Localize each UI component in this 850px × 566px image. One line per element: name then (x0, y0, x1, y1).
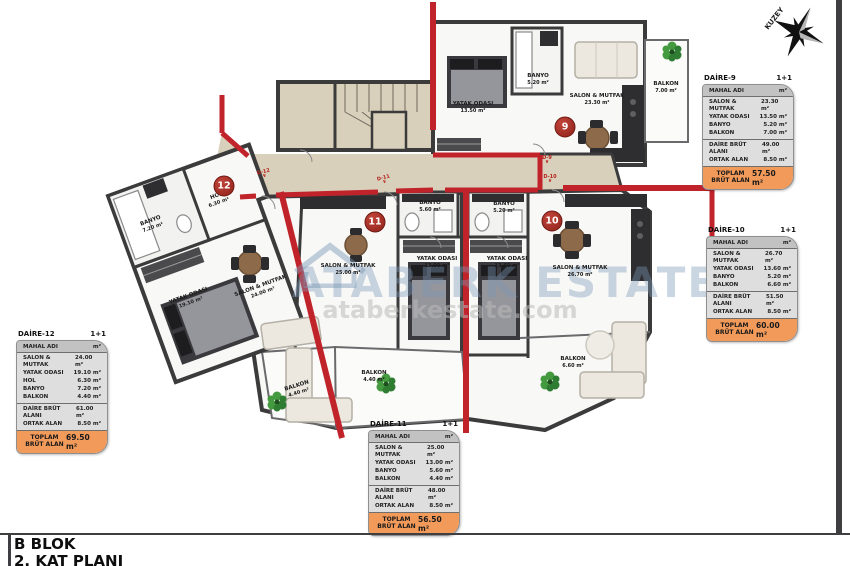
table-row: SALON & MUTFAK26.70 m² (707, 251, 797, 266)
table-total-row: TOPLAM BRÜT ALAN60.00 m² (707, 318, 797, 341)
table-title: DAİRE-9 (704, 74, 736, 82)
room-label: BANYO5.60 m² (419, 200, 441, 214)
table-total-row: TOPLAM BRÜT ALAN56.50 m² (369, 512, 459, 535)
table-row: SALON & MUTFAK24.00 m² (17, 355, 107, 370)
sheet-frame-left (8, 535, 11, 566)
table-row: YATAK ODASI19.10 m² (17, 370, 107, 378)
table-row: BALKON6.60 m² (707, 282, 797, 290)
table-row: YATAK ODASI13.00 m² (369, 460, 459, 468)
sheet-frame-right (836, 0, 842, 534)
table-row: DAİRE BRÜT ALANI51.50 m² (707, 294, 797, 309)
apartment-marker-11: 11 (365, 212, 386, 233)
apartment-marker-12: 12 (214, 176, 235, 197)
table-total-row: TOPLAM BRÜT ALAN57.50 m² (703, 166, 793, 189)
table-row: YATAK ODASI13.60 m² (707, 266, 797, 274)
area-table-DAİRE-12: DAİRE-121+1MAHAL ADIm²SALON & MUTFAK24.0… (16, 330, 108, 454)
block-title: B BLOK (14, 536, 76, 552)
table-title: DAİRE-11 (370, 420, 407, 428)
room-label: SALON & MUTFAK23.30 m² (570, 93, 625, 107)
area-table-DAİRE-11: DAİRE-111+1MAHAL ADIm²SALON & MUTFAK25.0… (368, 420, 460, 536)
table-type: 1+1 (90, 330, 106, 338)
door-label-D-9: D-9∨ (542, 156, 552, 164)
apartment-marker-10: 10 (542, 211, 563, 232)
table-total-row: TOPLAM BRÜT ALAN69.50 m² (17, 430, 107, 453)
room-label: BANYO5.20 m² (493, 201, 515, 215)
room-label: YATAK ODASI13.00 m² (417, 256, 458, 270)
table-row: BALKON4.40 m² (17, 394, 107, 402)
table-type: 1+1 (780, 226, 796, 234)
room-label: SALON & MUTFAK25.00 m² (321, 263, 376, 277)
apartment-9 (433, 22, 688, 165)
bed-icon (408, 262, 450, 340)
table-row: SALON & MUTFAK25.00 m² (369, 445, 459, 460)
table-row: BANYO5.20 m² (703, 122, 793, 130)
compass-label: KUZEY (763, 5, 786, 31)
table-type: 1+1 (442, 420, 458, 428)
room-label: BALKON6.60 m² (560, 356, 585, 370)
table-row: ORTAK ALAN8.50 m² (707, 309, 797, 317)
room-label: BALKON4.40 m² (361, 370, 386, 384)
door-label-D-10: D-10∨ (543, 175, 556, 183)
table-row: ORTAK ALAN8.50 m² (703, 157, 793, 165)
sheet-frame-bottom (0, 533, 850, 535)
table-row: SALON & MUTFAK23.30 m² (703, 99, 793, 114)
table-row: BALKON4.40 m² (369, 476, 459, 484)
area-table-DAİRE-9: DAİRE-91+1MAHAL ADIm²SALON & MUTFAK23.30… (702, 74, 794, 190)
table-row: BANYO5.20 m² (707, 274, 797, 282)
table-row: HOL6.30 m² (17, 378, 107, 386)
table-row: BALKON7.00 m² (703, 130, 793, 138)
room-label: SALON & MUTFAK26.70 m² (553, 265, 608, 279)
plan-title: 2. KAT PLANI (14, 553, 123, 566)
room-label: BALKON7.00 m² (653, 81, 678, 95)
table-row: BANYO5.60 m² (369, 468, 459, 476)
bed-icon (478, 262, 520, 340)
table-title: DAİRE-10 (708, 226, 745, 234)
table-row: BANYO7.20 m² (17, 386, 107, 394)
table-row: YATAK ODASI13.50 m² (703, 114, 793, 122)
area-table-DAİRE-10: DAİRE-101+1MAHAL ADIm²SALON & MUTFAK26.7… (706, 226, 798, 342)
apartment-marker-9: 9 (555, 117, 576, 138)
table-title: DAİRE-12 (18, 330, 55, 338)
table-row: DAİRE BRÜT ALANI61.00 m² (17, 406, 107, 421)
table-row: ORTAK ALAN8.50 m² (17, 421, 107, 429)
room-label: YATAK ODASI13.60 m² (487, 256, 528, 270)
room-label: YATAK ODASI13.50 m² (453, 101, 494, 115)
table-row: DAİRE BRÜT ALANI48.00 m² (369, 488, 459, 503)
room-label: BANYO5.20 m² (527, 73, 549, 87)
floor-plan-sheet: KUZEY ATABERK ESTATE ataberkestate.com Y… (0, 0, 850, 566)
table-row: ORTAK ALAN8.50 m² (369, 503, 459, 511)
compass-icon (763, 0, 835, 68)
table-type: 1+1 (776, 74, 792, 82)
table-row: DAİRE BRÜT ALANI49.00 m² (703, 142, 793, 157)
